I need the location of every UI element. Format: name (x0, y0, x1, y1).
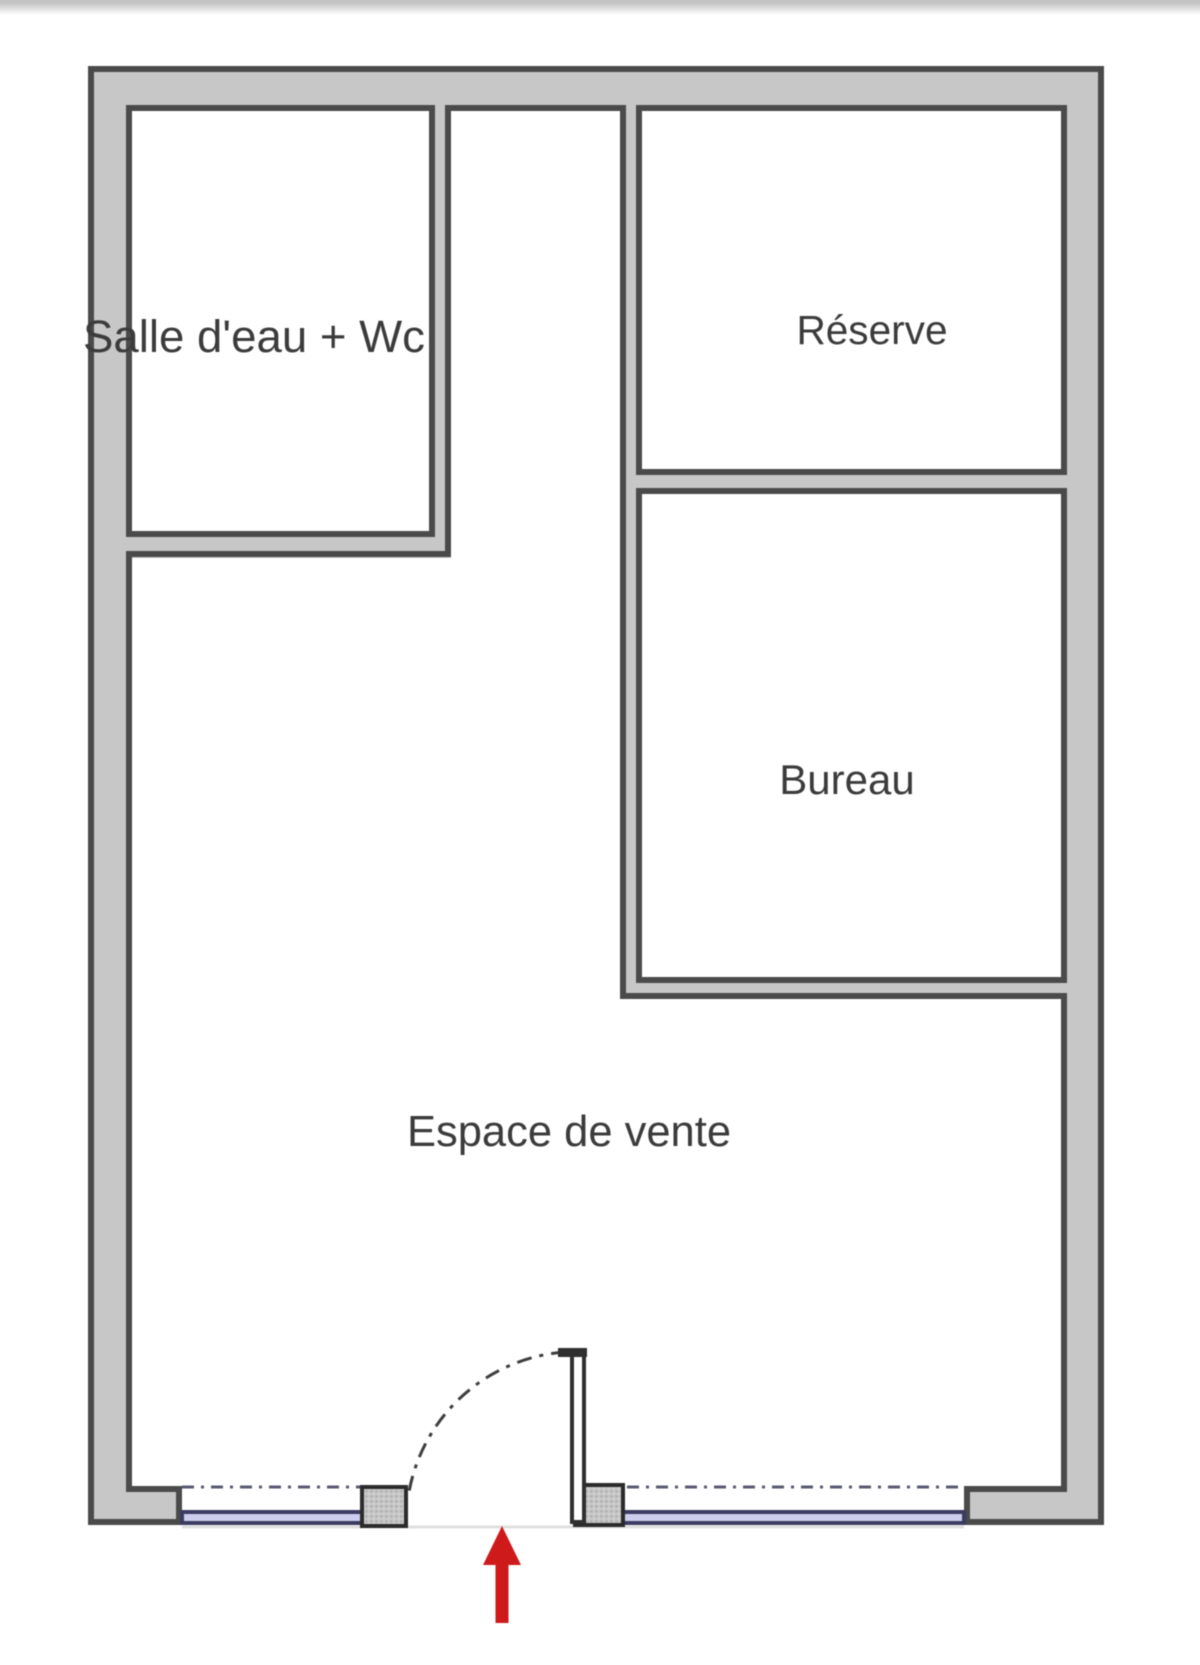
svg-text:Bureau: Bureau (779, 756, 914, 803)
svg-text:Réserve: Réserve (796, 307, 947, 353)
svg-text:Espace de vente: Espace de vente (407, 1108, 731, 1156)
svg-text:Salle d'eau + Wc: Salle d'eau + Wc (83, 311, 425, 362)
